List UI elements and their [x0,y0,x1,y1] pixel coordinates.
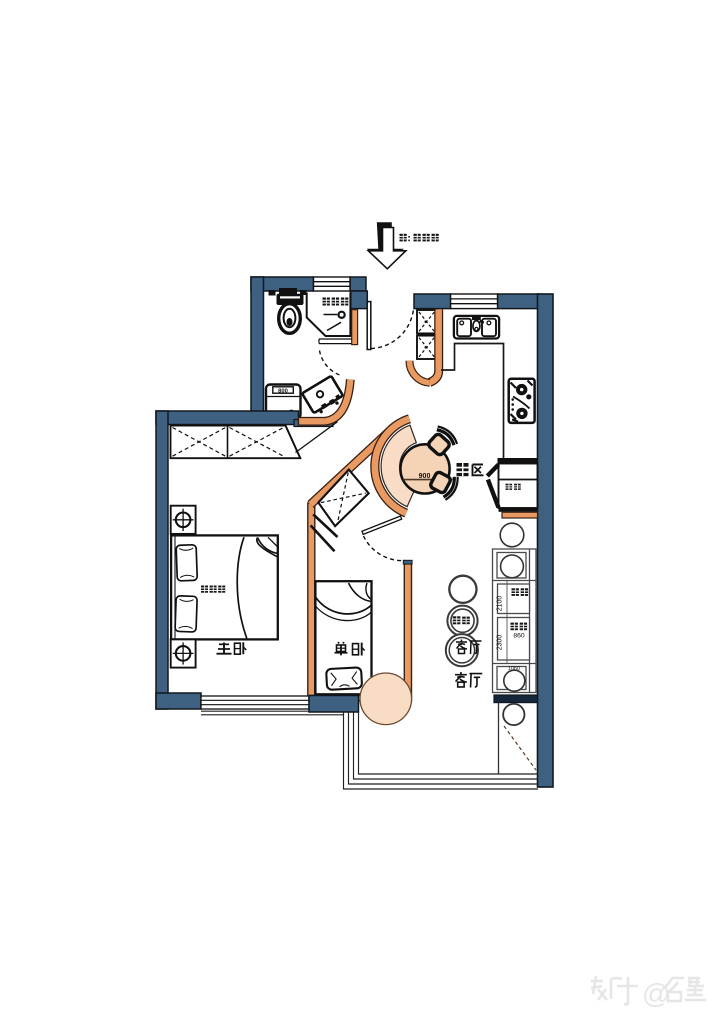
svg-text:800: 800 [278,388,288,394]
svg-text:900: 900 [419,473,431,480]
svg-text:860: 860 [513,633,525,640]
svg-text:@: @ [642,978,670,1009]
svg-text:2300: 2300 [497,635,504,651]
svg-text:1060: 1060 [508,666,520,672]
svg-text:2100: 2100 [497,596,504,612]
